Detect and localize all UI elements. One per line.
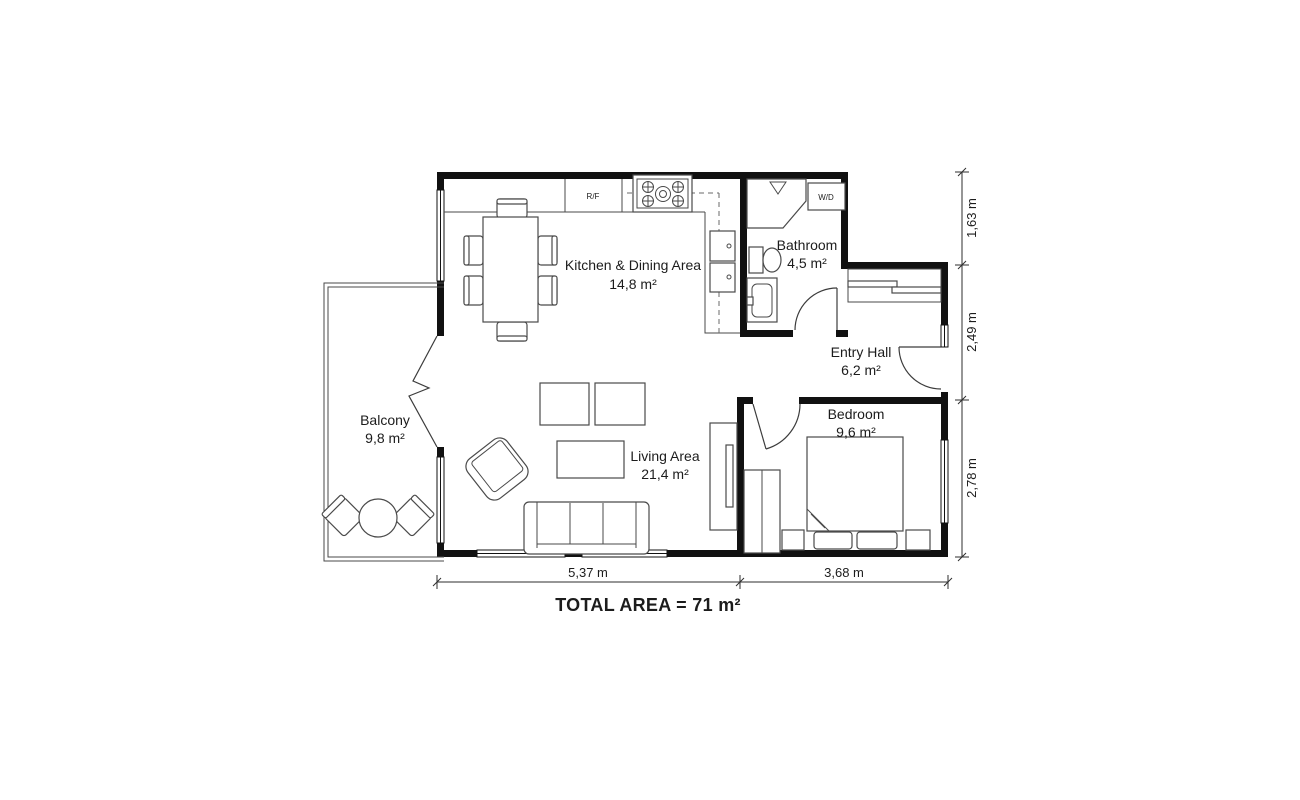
floor-plan-drawing: R/F W/D <box>0 0 1300 800</box>
floor-plan-canvas: R/F W/D <box>0 0 1300 800</box>
tv <box>726 445 733 507</box>
entry-closet <box>848 269 941 302</box>
bedroom-furniture <box>744 437 930 553</box>
bedroom-label: Bedroom <box>828 406 885 422</box>
nightstand <box>906 530 930 550</box>
pillow <box>814 532 852 549</box>
toilet-tank <box>749 247 763 273</box>
kitchen-area: 14,8 m² <box>609 276 657 292</box>
balcony-chair <box>392 494 434 536</box>
dim-right-2: 2,49 m <box>964 312 979 352</box>
nightstand <box>782 530 804 550</box>
bathroom-label: Bathroom <box>777 237 838 253</box>
balcony-label: Balcony <box>360 412 410 428</box>
side-table <box>595 383 645 425</box>
fridge-label: R/F <box>587 192 600 201</box>
dining-table <box>483 217 538 322</box>
side-table <box>540 383 589 425</box>
balcony-folding-door <box>409 336 437 447</box>
wardrobe <box>744 470 780 553</box>
dim-right-1: 1,63 m <box>964 198 979 238</box>
bed <box>807 437 903 549</box>
stove <box>633 175 692 212</box>
bedroom-door <box>753 404 800 449</box>
dim-bottom-2: 3,68 m <box>824 565 864 580</box>
entry-front-door <box>899 347 941 389</box>
living-label: Living Area <box>630 448 699 464</box>
dimension-bottom: 5,37 m 3,68 m <box>433 565 952 589</box>
dimension-right: 1,63 m 2,49 m 2,78 m <box>955 168 979 561</box>
bathroom-door <box>795 288 837 330</box>
sliding-door <box>892 287 941 293</box>
balcony-table <box>359 499 397 537</box>
washer-dryer-label: W/D <box>818 193 834 202</box>
shower <box>747 179 806 228</box>
faucet <box>747 297 753 305</box>
dim-bottom-1: 5,37 m <box>568 565 608 580</box>
tv-console <box>710 423 737 530</box>
sofa <box>524 502 649 554</box>
balcony-furniture <box>321 494 434 537</box>
living-furniture <box>462 383 737 554</box>
kitchen-label: Kitchen & Dining Area <box>565 257 701 273</box>
bathroom-area: 4,5 m² <box>787 255 827 271</box>
armchair <box>462 434 532 504</box>
sliding-door <box>848 281 897 287</box>
pillow <box>857 532 897 549</box>
dining-table-set <box>464 199 557 341</box>
coffee-table <box>557 441 624 478</box>
balcony-area: 9,8 m² <box>365 430 405 446</box>
total-area-label: TOTAL AREA = 71 m² <box>555 595 741 615</box>
entry-label: Entry Hall <box>831 344 892 360</box>
bedroom-area: 9,6 m² <box>836 424 876 440</box>
entry-area: 6,2 m² <box>841 362 881 378</box>
living-area-label: 21,4 m² <box>641 466 689 482</box>
dim-right-3: 2,78 m <box>964 458 979 498</box>
